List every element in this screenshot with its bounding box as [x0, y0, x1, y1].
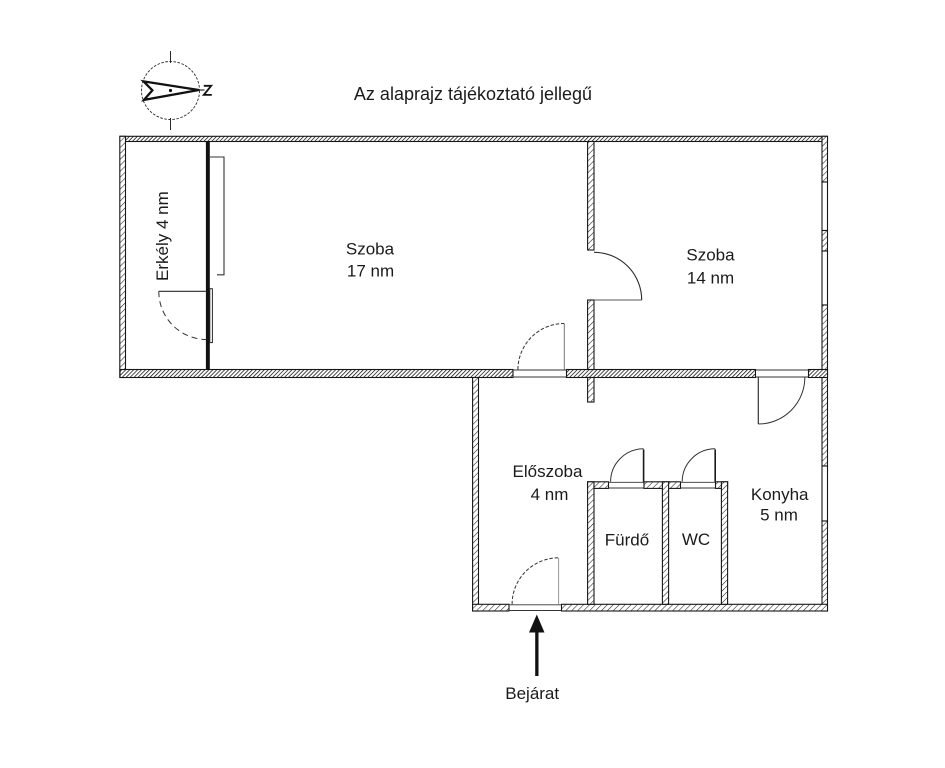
svg-text:17 nm: 17 nm — [347, 262, 394, 281]
svg-text:Fürdő: Fürdő — [605, 531, 649, 550]
svg-text:Bejárat: Bejárat — [505, 684, 559, 703]
svg-text:WC: WC — [682, 530, 710, 549]
svg-text:Az alaprajz tájékoztató jelleg: Az alaprajz tájékoztató jellegű — [354, 84, 592, 104]
svg-text:14 nm: 14 nm — [687, 268, 734, 287]
svg-text:Előszoba: Előszoba — [513, 462, 583, 481]
svg-text:Erkély 4 nm: Erkély 4 nm — [153, 191, 172, 281]
svg-text:Konyha: Konyha — [751, 485, 809, 504]
svg-text:Szoba: Szoba — [686, 246, 735, 265]
svg-text:Szoba: Szoba — [346, 239, 395, 258]
svg-text:5 nm: 5 nm — [760, 505, 798, 524]
svg-text:4 nm: 4 nm — [531, 485, 569, 504]
